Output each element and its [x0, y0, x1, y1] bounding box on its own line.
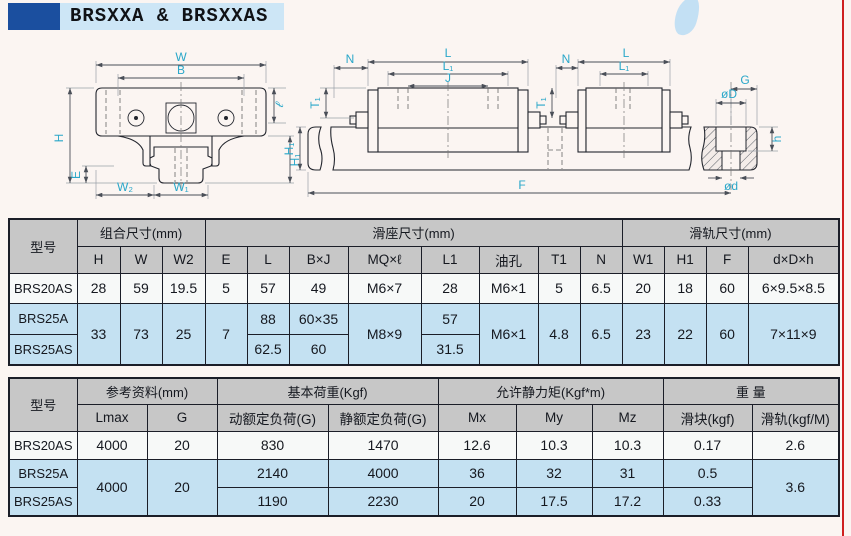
t2-col-mx: Mx — [438, 404, 516, 431]
t2-cell: 2140 — [217, 459, 328, 487]
technical-drawing: W B H E W₂ W₁ ℓ H₁ — [0, 38, 851, 216]
t1-cell: 7 — [205, 303, 247, 365]
t2-group-moment: 允许静力矩(Kgf*m) — [438, 378, 663, 404]
t2-cell: 20 — [438, 487, 516, 516]
dim-label-t1-left: T₁ — [308, 97, 322, 108]
t2-cell: 17.2 — [592, 487, 663, 516]
t1-col-h1: H1 — [664, 246, 706, 273]
spec-table-dimensions: 型号 组合尺寸(mm) 滑座尺寸(mm) 滑轨尺寸(mm) H W W2 E L… — [8, 218, 840, 366]
t1-cell: 20 — [622, 273, 664, 303]
t1-cell: 4.8 — [538, 303, 580, 365]
t2-cell: 0.5 — [663, 459, 752, 487]
t2-col-mz: Mz — [592, 404, 663, 431]
t1-col-e: E — [205, 246, 247, 273]
t1-cell: 28 — [77, 273, 120, 303]
dim-label-w: W — [175, 50, 187, 64]
t1-cell: 6×9.5×8.5 — [748, 273, 839, 303]
t1-cell: 28 — [421, 273, 479, 303]
t2-cell: 1190 — [217, 487, 328, 516]
t1-model-brs25as: BRS25AS — [9, 334, 77, 365]
t1-col-l1: L1 — [421, 246, 479, 273]
t2-cell: 12.6 — [438, 431, 516, 459]
t1-model-brs25a: BRS25A — [9, 303, 77, 334]
title-accent-square — [8, 3, 60, 30]
dim-label-g: G — [740, 73, 749, 87]
t1-cell: 62.5 — [247, 334, 289, 365]
t1-cell: 49 — [289, 273, 348, 303]
t1-row-brs20as: BRS20AS 28 59 19.5 5 57 49 M6×7 28 M6×1 … — [9, 273, 839, 303]
dim-label-j: J — [445, 71, 451, 85]
side-view-drawing: N L L₁ J T₁ H₁ N L L₁ T₁ G øD h — [282, 46, 784, 197]
dim-label-dia-D: øD — [721, 87, 737, 101]
t1-cell: 6.5 — [580, 303, 622, 365]
t2-cell: 17.5 — [516, 487, 592, 516]
t1-cell: 22 — [664, 303, 706, 365]
watermark-blob — [670, 0, 703, 38]
t1-cell: 57 — [247, 273, 289, 303]
t1-col-w1: W1 — [622, 246, 664, 273]
t2-cell: 0.17 — [663, 431, 752, 459]
t2-col-block: 滑块(kgf) — [663, 404, 752, 431]
dim-label-l-short: L — [623, 46, 630, 60]
t2-col-dyn: 动额定负荷(G) — [217, 404, 328, 431]
t2-cell: 1470 — [328, 431, 438, 459]
spec-table-load: 型号 参考资料(mm) 基本荷重(Kgf) 允许静力矩(Kgf*m) 重 量 L… — [8, 377, 840, 517]
t2-model-brs25as: BRS25AS — [9, 487, 77, 516]
t1-header-model: 型号 — [9, 219, 77, 273]
dim-label-w2: W₂ — [117, 180, 133, 194]
t2-cell: 2230 — [328, 487, 438, 516]
t2-row-brs25a: BRS25A 4000 20 2140 4000 36 32 31 0.5 3.… — [9, 459, 839, 487]
t1-cell: 18 — [664, 273, 706, 303]
t2-cell: 830 — [217, 431, 328, 459]
t1-cell: 60×35 — [289, 303, 348, 334]
t2-cell: 20 — [147, 431, 217, 459]
dim-label-b: B — [177, 63, 185, 77]
page-title: BRSXXA & BRSXXAS — [60, 3, 284, 30]
t1-col-t1: T1 — [538, 246, 580, 273]
t2-group-reference: 参考资料(mm) — [77, 378, 217, 404]
t2-col-lmax: Lmax — [77, 404, 147, 431]
dim-label-e: E — [69, 171, 83, 179]
dim-label-f: F — [518, 178, 525, 192]
t2-cell: 10.3 — [516, 431, 592, 459]
t1-col-f: F — [706, 246, 748, 273]
t2-group-load: 基本荷重(Kgf) — [217, 378, 438, 404]
dim-label-h-small: h — [770, 136, 784, 143]
t1-cell: M6×7 — [348, 273, 421, 303]
dim-label-w1: W₁ — [173, 180, 188, 194]
t1-col-w: W — [120, 246, 162, 273]
t2-group-weight: 重 量 — [663, 378, 839, 404]
t2-cell: 4000 — [77, 431, 147, 459]
dim-label-l-long: L — [445, 46, 452, 60]
t1-cell: 60 — [706, 273, 748, 303]
t2-model-brs25a: BRS25A — [9, 459, 77, 487]
t1-cell: 60 — [289, 334, 348, 365]
t1-cell: 5 — [538, 273, 580, 303]
t2-col-rail: 滑轨(kgf/M) — [752, 404, 839, 431]
t2-cell: 20 — [147, 459, 217, 516]
front-view-drawing: W B H E W₂ W₁ ℓ H₁ — [52, 50, 302, 199]
t1-cell: M8×9 — [348, 303, 421, 365]
t1-col-l: L — [247, 246, 289, 273]
t1-col-oil: 油孔 — [479, 246, 538, 273]
dim-label-n-left: N — [346, 52, 355, 66]
t1-cell: 25 — [162, 303, 205, 365]
t1-model-brs20as: BRS20AS — [9, 273, 77, 303]
t2-model-brs20as: BRS20AS — [9, 431, 77, 459]
t1-group-carriage: 滑座尺寸(mm) — [205, 219, 622, 246]
t1-col-ddh: d×D×h — [748, 246, 839, 273]
dim-label-l1-short: L₁ — [619, 59, 630, 73]
t1-col-mq: MQ×ℓ — [348, 246, 421, 273]
dim-label-h: H — [52, 134, 66, 143]
t1-cell: 33 — [77, 303, 120, 365]
t2-cell: 31 — [592, 459, 663, 487]
dim-label-t1-right: T₁ — [534, 97, 548, 108]
t1-col-n: N — [580, 246, 622, 273]
t1-cell: 7×11×9 — [748, 303, 839, 365]
t2-col-g: G — [147, 404, 217, 431]
dim-label-n-right: N — [562, 52, 571, 66]
t2-cell: 32 — [516, 459, 592, 487]
t2-col-stat: 静额定负荷(G) — [328, 404, 438, 431]
t2-cell: 4000 — [328, 459, 438, 487]
t1-col-w2: W2 — [162, 246, 205, 273]
t2-cell: 2.6 — [752, 431, 839, 459]
dim-label-dia-d: ød — [724, 179, 738, 193]
t2-cell: 3.6 — [752, 459, 839, 516]
t1-cell: 57 — [421, 303, 479, 334]
t2-row-brs20as: BRS20AS 4000 20 830 1470 12.6 10.3 10.3 … — [9, 431, 839, 459]
t1-cell: 23 — [622, 303, 664, 365]
t1-col-bj: B×J — [289, 246, 348, 273]
t1-cell: 73 — [120, 303, 162, 365]
t1-col-h: H — [77, 246, 120, 273]
t1-cell: M6×1 — [479, 303, 538, 365]
t1-cell: 60 — [706, 303, 748, 365]
t1-cell: 19.5 — [162, 273, 205, 303]
t1-cell: 6.5 — [580, 273, 622, 303]
t2-cell: 10.3 — [592, 431, 663, 459]
t1-group-rail: 滑轨尺寸(mm) — [622, 219, 839, 246]
t2-header-model: 型号 — [9, 378, 77, 431]
t1-cell: 88 — [247, 303, 289, 334]
page-title-bar: BRSXXA & BRSXXAS — [8, 3, 284, 30]
t1-group-assembly: 组合尺寸(mm) — [77, 219, 205, 246]
t2-cell: 0.33 — [663, 487, 752, 516]
t1-cell: M6×1 — [479, 273, 538, 303]
t2-cell: 4000 — [77, 459, 147, 516]
t1-cell: 31.5 — [421, 334, 479, 365]
dim-label-h1-side: H₁ — [282, 143, 296, 156]
t1-cell: 5 — [205, 273, 247, 303]
t1-cell: 59 — [120, 273, 162, 303]
t2-col-my: My — [516, 404, 592, 431]
t2-cell: 36 — [438, 459, 516, 487]
t1-row-brs25a: BRS25A 33 73 25 7 88 60×35 M8×9 57 M6×1 … — [9, 303, 839, 334]
